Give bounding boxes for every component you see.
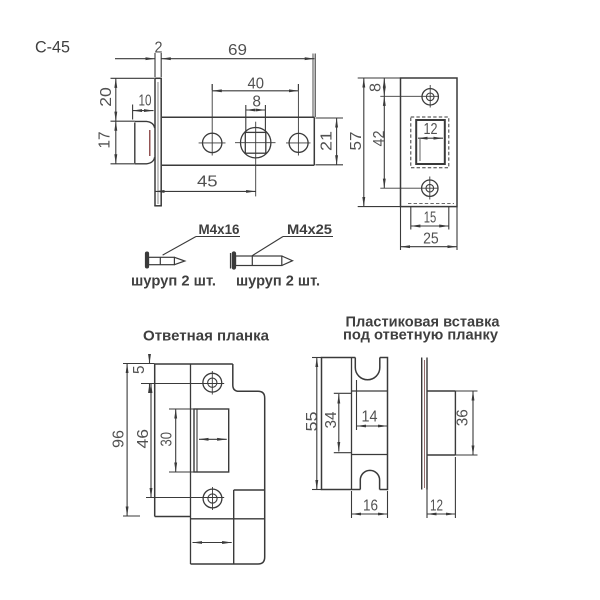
svg-text:Ответная планка: Ответная планка	[143, 328, 270, 345]
svg-text:46: 46	[135, 429, 152, 449]
svg-text:2: 2	[155, 40, 163, 57]
svg-text:14: 14	[362, 409, 378, 426]
svg-text:под ответную планку: под ответную планку	[343, 327, 499, 344]
svg-text:10: 10	[139, 93, 152, 110]
svg-text:8: 8	[368, 83, 385, 92]
svg-text:шуруп 2 шт.: шуруп 2 шт.	[131, 273, 216, 290]
svg-text:20: 20	[98, 87, 115, 107]
svg-text:5: 5	[131, 365, 148, 374]
svg-text:30: 30	[159, 432, 176, 447]
svg-text:34: 34	[323, 411, 340, 428]
svg-text:12: 12	[424, 121, 438, 138]
svg-text:17: 17	[97, 131, 114, 148]
svg-text:М4х25: М4х25	[287, 221, 332, 237]
svg-text:40: 40	[248, 76, 265, 93]
svg-text:42: 42	[371, 130, 388, 146]
svg-text:57: 57	[348, 131, 365, 150]
svg-text:М4х16: М4х16	[199, 221, 240, 237]
svg-text:С-45: С-45	[35, 38, 70, 57]
svg-text:55: 55	[304, 411, 321, 431]
svg-text:36: 36	[454, 409, 471, 426]
svg-text:45: 45	[197, 174, 218, 191]
svg-text:шуруп 2 шт.: шуруп 2 шт.	[236, 273, 320, 290]
svg-text:69: 69	[228, 42, 247, 59]
svg-text:16: 16	[363, 498, 378, 515]
svg-text:21: 21	[319, 131, 336, 151]
svg-text:15: 15	[424, 210, 437, 227]
svg-text:8: 8	[252, 94, 261, 111]
svg-text:96: 96	[110, 430, 127, 448]
svg-text:12: 12	[430, 498, 443, 515]
svg-text:25: 25	[423, 231, 439, 248]
